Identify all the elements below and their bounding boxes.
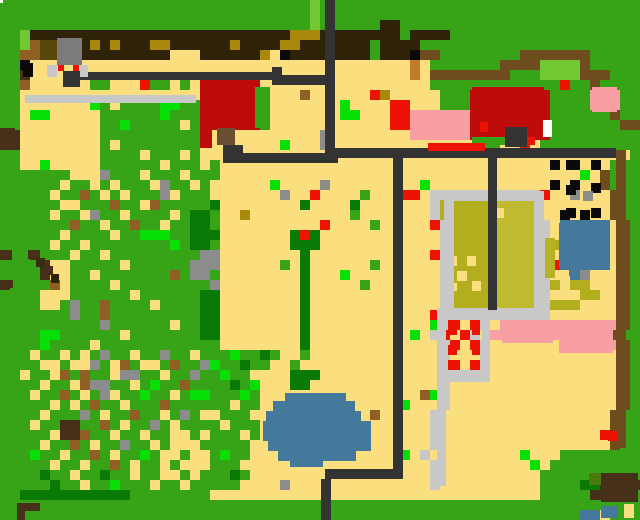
olive-strip-east bbox=[545, 238, 555, 278]
map-features-layer bbox=[0, 0, 640, 520]
pond-large-7 bbox=[290, 461, 323, 467]
house-east-door-white bbox=[543, 120, 552, 137]
fence-dark-long bbox=[80, 72, 273, 80]
statue-side-right bbox=[80, 65, 88, 77]
pink-patch-south-a bbox=[502, 320, 553, 343]
pen-red-dot-1 bbox=[448, 320, 457, 335]
orchard-rock bbox=[583, 191, 593, 201]
pen-red-dot-2 bbox=[472, 320, 480, 335]
pen-red-dot-4 bbox=[472, 345, 480, 355]
pen-red-dot-5 bbox=[448, 360, 457, 370]
house-east-red-dot-a bbox=[480, 122, 488, 132]
log-d bbox=[51, 274, 59, 283]
house-west-lawn bbox=[255, 87, 270, 128]
road-gray bbox=[25, 95, 196, 103]
pen-rail-east bbox=[482, 318, 490, 382]
flag-pole bbox=[17, 511, 25, 520]
orchard-hole-6 bbox=[591, 208, 601, 218]
orchard-hole-5 bbox=[566, 208, 576, 218]
field-frame-left bbox=[444, 191, 454, 318]
orchard-hole-2 bbox=[591, 160, 601, 170]
pond-large-1 bbox=[285, 393, 346, 401]
pond-small-main bbox=[559, 223, 597, 268]
path-bottom-stub bbox=[321, 479, 331, 520]
cliff-block-c bbox=[0, 280, 13, 288]
cliff-block-a bbox=[0, 128, 15, 150]
path-vertical-main bbox=[325, 0, 335, 153]
pond-large-4 bbox=[263, 421, 371, 441]
orchard-hole-1 bbox=[566, 160, 576, 170]
orchard-hole-3 bbox=[566, 185, 576, 195]
statue-base bbox=[63, 71, 80, 87]
statue-eye-right bbox=[73, 65, 79, 71]
pond-large-5 bbox=[268, 441, 371, 451]
pink-patch-west bbox=[415, 113, 470, 138]
field-frame-right bbox=[534, 191, 544, 318]
cliff-block-b bbox=[0, 250, 12, 260]
statue-body bbox=[57, 38, 82, 65]
fence-dark-connector bbox=[282, 75, 328, 85]
crop-field-dot-6 bbox=[472, 281, 481, 291]
pond-large-6 bbox=[278, 451, 356, 461]
shed-sand bbox=[624, 504, 634, 518]
game-world-map[interactable] bbox=[0, 0, 640, 520]
crop-field-dot-3 bbox=[467, 256, 476, 266]
pink-patch-northeast bbox=[592, 87, 617, 112]
pond-large-3 bbox=[266, 411, 361, 421]
fence-dark-corner bbox=[272, 67, 282, 85]
pen-rail-west bbox=[437, 308, 446, 486]
statue-side-left bbox=[47, 65, 57, 77]
flag-top bbox=[17, 503, 40, 511]
pen-red-dot-3 bbox=[448, 345, 457, 355]
path-horizontal-bottom bbox=[325, 469, 403, 479]
pen-rail-south bbox=[446, 372, 482, 382]
fence-column-east bbox=[616, 150, 626, 448]
path-vertical-field bbox=[488, 158, 497, 310]
red-bar bbox=[428, 143, 485, 151]
pond-large-2 bbox=[273, 401, 355, 411]
house-west-step bbox=[223, 145, 243, 158]
shed-brown bbox=[601, 473, 638, 502]
shed-moss bbox=[589, 473, 601, 485]
pink-patch-south-b bbox=[559, 321, 613, 353]
path-vertical-mid bbox=[393, 153, 403, 479]
fence-column-red bbox=[608, 431, 618, 441]
house-east-red-dot-b bbox=[527, 137, 535, 145]
crop-field-dot-4 bbox=[457, 271, 467, 281]
shed-water bbox=[601, 506, 618, 518]
white-marker bbox=[0, 0, 3, 3]
house-red-west bbox=[200, 82, 255, 128]
house-west-wing bbox=[200, 128, 212, 148]
crop-field-left bbox=[454, 201, 488, 308]
house-west-door bbox=[217, 128, 235, 145]
pen-red-dot-6 bbox=[472, 360, 480, 370]
statue-eye-left bbox=[58, 65, 64, 71]
pond-small-east bbox=[597, 233, 607, 263]
pond-small-notch bbox=[569, 268, 579, 276]
house-east-porch bbox=[505, 127, 527, 147]
rock-black bbox=[23, 63, 33, 77]
